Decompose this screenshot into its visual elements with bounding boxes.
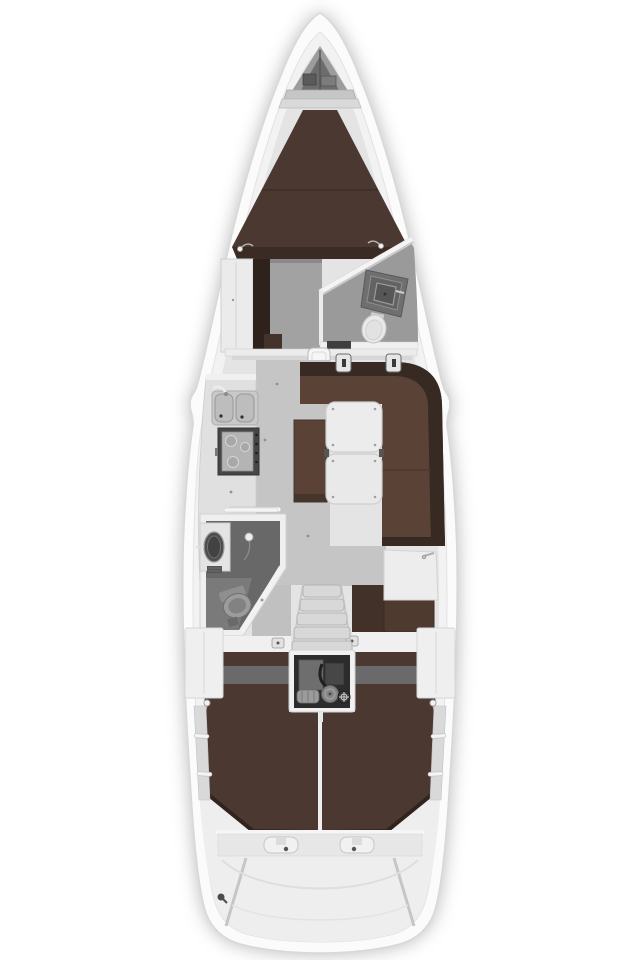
keel-stem <box>319 712 323 722</box>
towel-bar <box>224 508 278 512</box>
bench-end <box>294 494 327 502</box>
chain-box <box>321 76 336 86</box>
port-berth-panel <box>212 666 289 684</box>
table-leaf-forward <box>326 402 382 452</box>
floor-plan-drawing <box>0 0 640 960</box>
head-door-gap <box>327 341 351 350</box>
burner <box>228 457 239 468</box>
engine-housing <box>325 663 344 685</box>
step <box>303 585 341 597</box>
berth-edge-line <box>216 830 424 834</box>
table-leaf-aft <box>326 454 382 504</box>
port-wardrobe <box>221 259 253 352</box>
wardrobe-handle <box>232 299 234 301</box>
vanity-grate <box>207 566 222 573</box>
galley-double-sink <box>212 387 258 425</box>
counter-dot <box>230 491 233 494</box>
cabin-divider <box>318 712 322 834</box>
windlass <box>303 74 316 85</box>
step <box>294 627 350 639</box>
stern-latch <box>264 837 298 853</box>
engine-compartment <box>289 650 355 722</box>
step <box>300 599 344 611</box>
gimbal-mount <box>215 448 218 456</box>
burner <box>226 436 237 447</box>
galley-stove <box>215 428 259 475</box>
companionway-steps <box>292 585 352 652</box>
faucet-base <box>224 392 228 396</box>
burner <box>241 443 250 452</box>
shelf-bar <box>428 772 443 777</box>
sink-drain <box>384 293 387 296</box>
yacht-floor-plan <box>0 0 640 960</box>
table-hinge <box>324 449 329 457</box>
head-left-wall <box>319 290 323 345</box>
starboard-berth-panel <box>351 666 424 684</box>
center-bench <box>294 420 327 502</box>
bow-shelf <box>279 99 361 108</box>
shelf-bar <box>194 734 209 739</box>
stern-step-band <box>218 834 422 856</box>
door-handle <box>261 599 264 602</box>
step <box>297 613 347 625</box>
bulkhead-latch <box>386 354 401 372</box>
saloon-floor-aft <box>330 546 386 586</box>
aft-vanity <box>196 523 230 573</box>
sink-drain <box>219 414 222 417</box>
stern-latch <box>340 837 374 853</box>
chart-table <box>384 550 438 600</box>
shelf-bar <box>431 734 446 739</box>
table-hinge <box>379 449 384 457</box>
counter-edge <box>206 374 256 380</box>
shelf-bar <box>197 772 212 777</box>
floor-shadow <box>270 259 322 263</box>
bulkhead-latch <box>336 354 351 372</box>
locker-divider <box>284 90 356 99</box>
settee-end-backrest <box>382 537 445 546</box>
deck-latch <box>272 638 284 648</box>
nav-seat <box>384 598 434 632</box>
sink-drain <box>240 415 243 418</box>
